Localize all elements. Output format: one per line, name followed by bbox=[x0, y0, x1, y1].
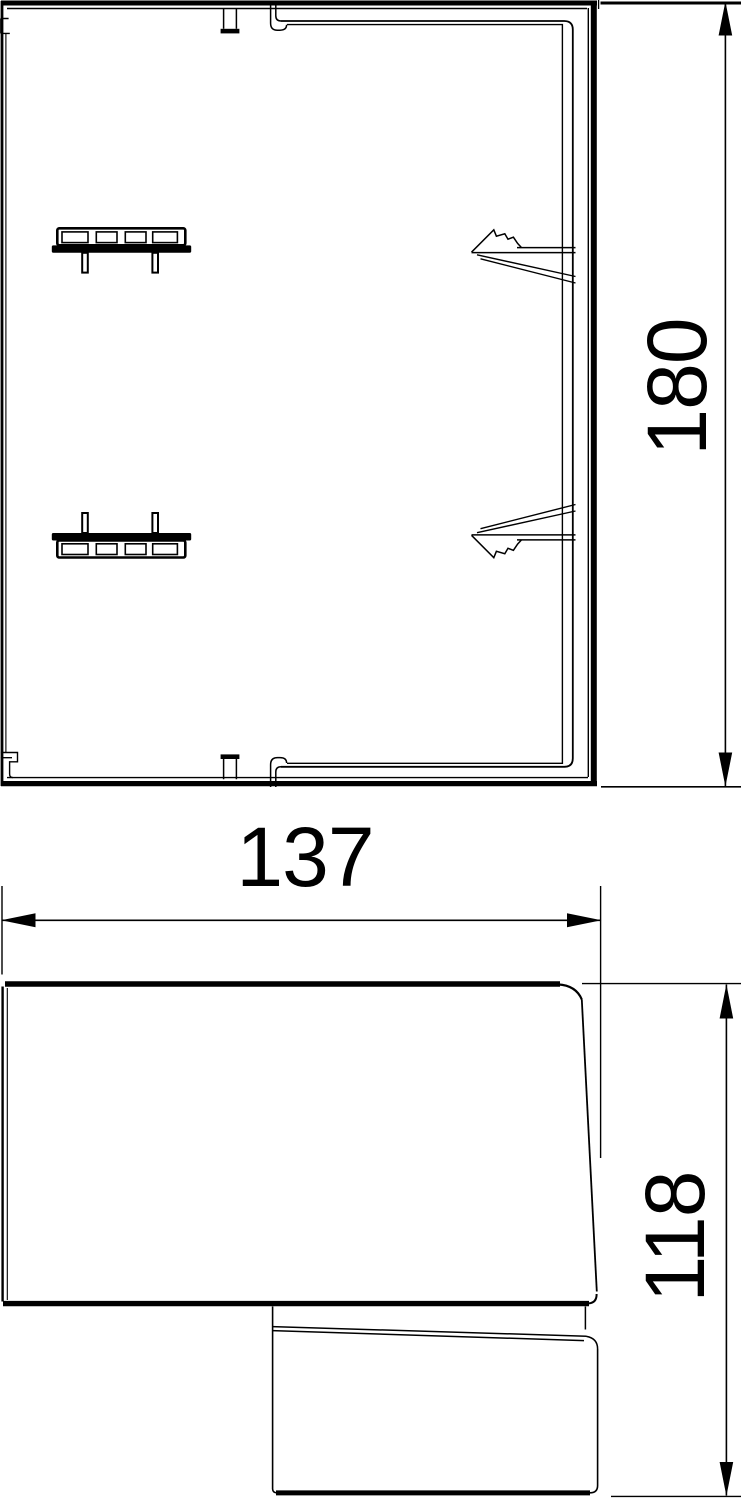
dimension-label-height: 180 bbox=[629, 277, 725, 497]
side-view-body bbox=[3, 984, 597, 1304]
technical-drawing-canvas: 180 137 118 bbox=[0, 0, 742, 1500]
latch-hook-upper bbox=[472, 230, 576, 283]
dimension-label-width: 137 bbox=[195, 809, 415, 905]
latch-hook-lower bbox=[472, 505, 576, 558]
top-view-inner-channel bbox=[271, 1, 573, 787]
dimension-line-137 bbox=[1, 886, 601, 1158]
dimension-label-depth: 118 bbox=[627, 1127, 723, 1347]
mounting-clip-lower bbox=[52, 513, 191, 558]
mounting-clip-upper bbox=[52, 228, 191, 272]
corner-notch-top bbox=[221, 9, 240, 34]
corner-notch-bottom bbox=[221, 754, 240, 779]
side-view-lower-block bbox=[273, 1307, 598, 1493]
